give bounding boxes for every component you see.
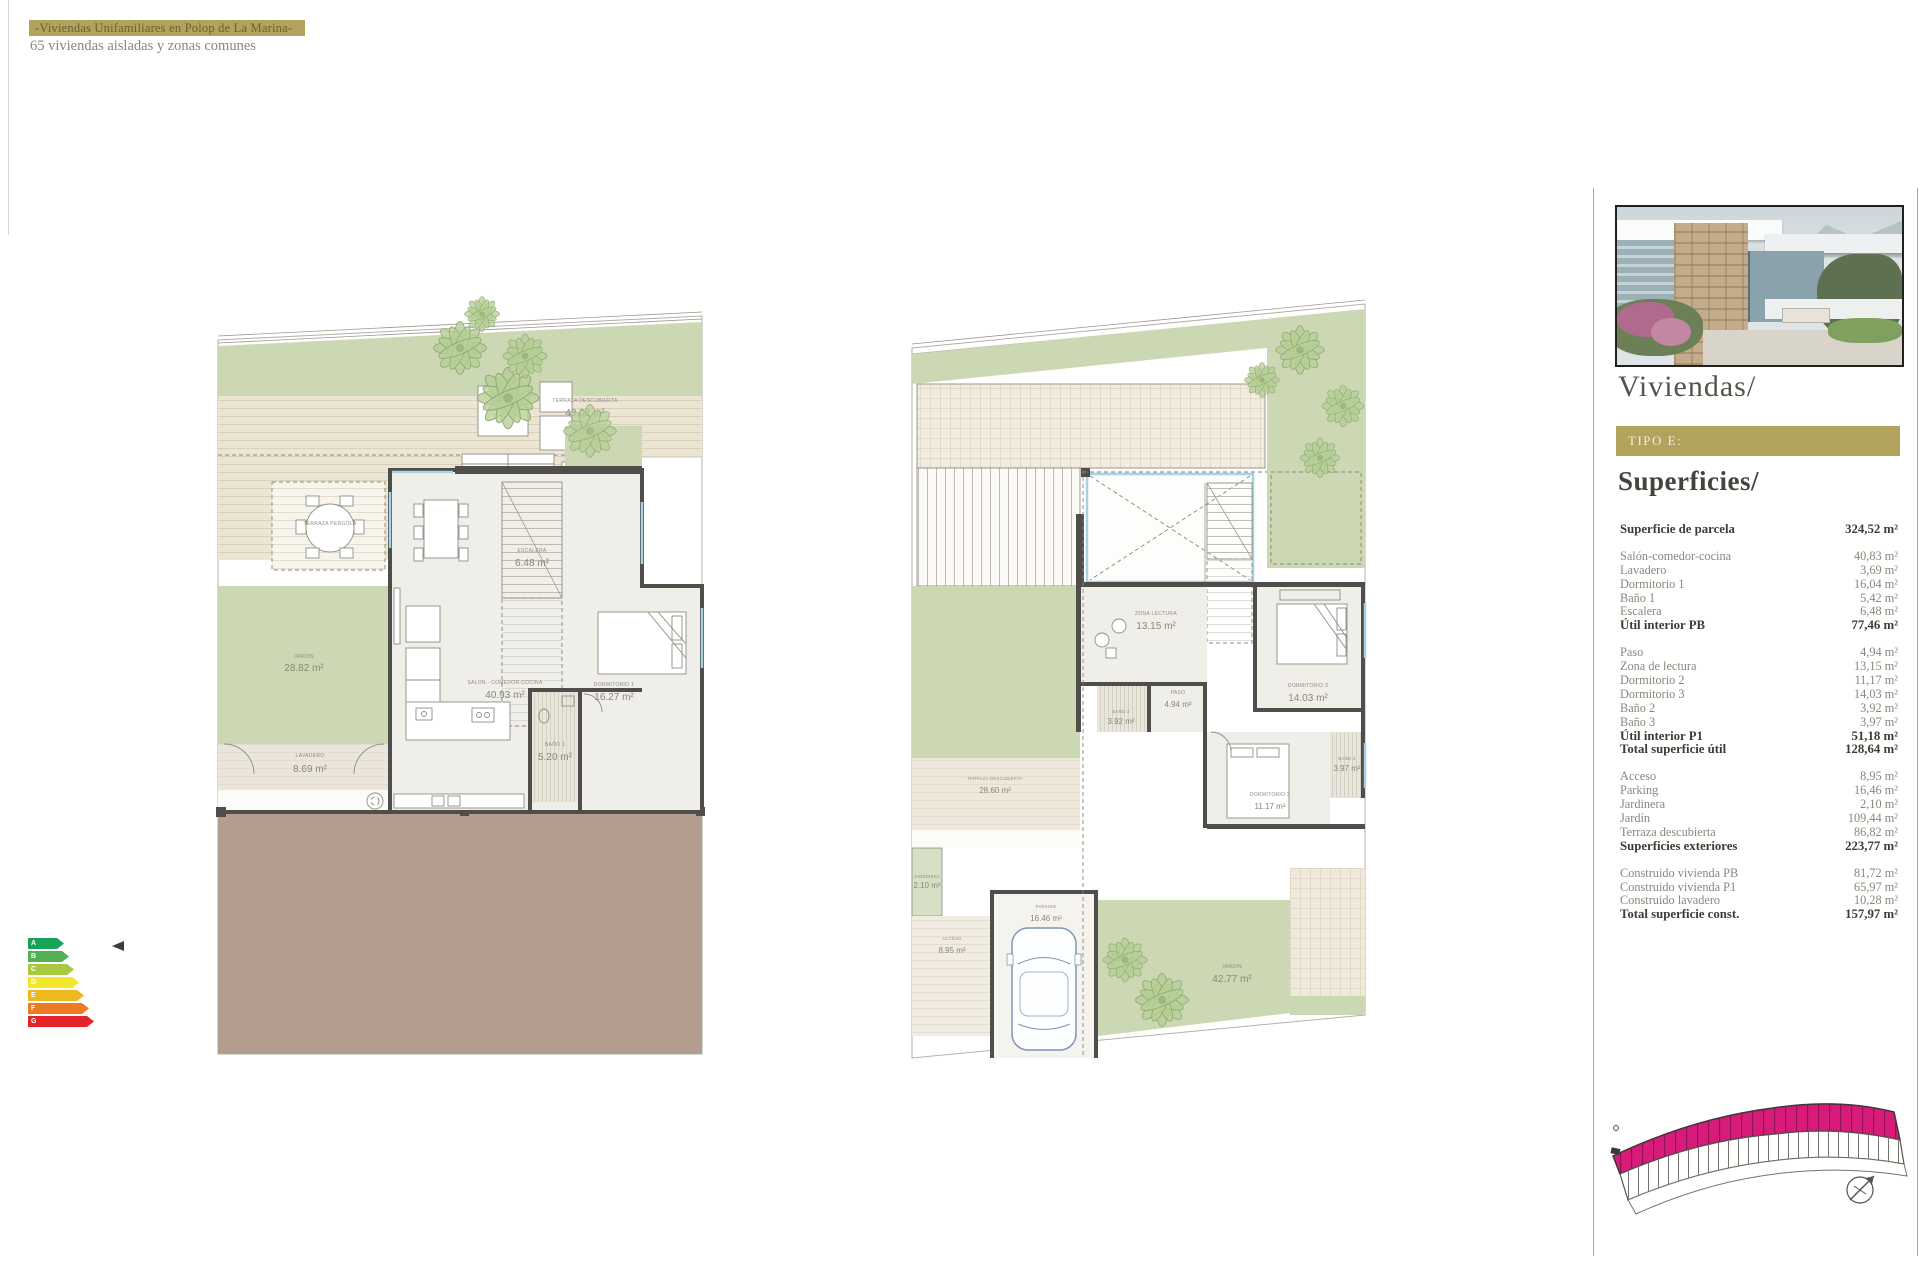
- room-label: SALON - COMEDOR-COCINA: [467, 680, 543, 686]
- surface-label: Construido lavadero: [1620, 893, 1720, 907]
- energy-marker-icon: [112, 941, 124, 951]
- room-area: 8.69 m²: [293, 764, 328, 775]
- surface-label: Construido vivienda PB: [1620, 866, 1738, 880]
- room-label: PASO: [1171, 690, 1186, 696]
- palm-tree-icon: [464, 296, 499, 331]
- sidebar-right-rule: [1917, 188, 1918, 1256]
- surface-value: 3,92 m²: [1860, 701, 1898, 715]
- surface-section: Superficie de parcela324,52 m²: [1620, 522, 1898, 536]
- surface-row: Lavadero3,69 m²: [1620, 563, 1898, 577]
- room-label: TERRAZA PERGOLA: [303, 521, 356, 527]
- room-label: TERRAZA DESCUBIERTA: [552, 398, 618, 404]
- surface-section: Construido vivienda PB81,72 m²Construido…: [1620, 866, 1898, 922]
- surface-label: Zona de lectura: [1620, 659, 1696, 673]
- surface-value: 8,95 m²: [1860, 769, 1898, 783]
- surface-section: Acceso8,95 m²Parking16,46 m²Jardinera2,1…: [1620, 769, 1898, 852]
- surface-value: 51,18 m²: [1852, 729, 1899, 743]
- room-label: BAÑO 1: [545, 741, 565, 748]
- surface-value: 65,97 m²: [1854, 880, 1898, 894]
- brochure-page: -Viviendas Unifamiliares en Polop de La …: [0, 0, 1920, 1280]
- sidebar-left-rule: [1593, 188, 1594, 1256]
- surface-value: 3,69 m²: [1860, 563, 1898, 577]
- room-label: JARDINERA: [914, 874, 940, 879]
- surfaces-title: Superficies/: [1618, 466, 1759, 497]
- room-area: 11.17 m²: [1255, 802, 1286, 811]
- palm-tree-icon: [503, 334, 547, 378]
- room-label: ESCALERA: [517, 548, 546, 554]
- surface-label: Superficies exteriores: [1620, 839, 1737, 853]
- room-area: 5.20 m²: [538, 752, 573, 763]
- energy-bar: D: [28, 977, 79, 988]
- garden-left: [912, 586, 1080, 758]
- room-label: DORMITORIO 3: [1288, 683, 1328, 689]
- room-area: 3.97 m²: [1333, 764, 1360, 773]
- project-photo: [1615, 205, 1904, 367]
- energy-letter: E: [28, 992, 36, 999]
- palm-tree-icon: [1300, 438, 1340, 478]
- room-label: PARKING: [1036, 904, 1057, 909]
- surface-row: Construido vivienda PB81,72 m²: [1620, 866, 1898, 880]
- room-label: ACCESO: [942, 936, 962, 941]
- surface-label: Dormitorio 3: [1620, 687, 1685, 701]
- sidebar-title: Viviendas/: [1618, 370, 1756, 404]
- room-area: 28.60 m²: [979, 786, 1011, 795]
- surface-label: Útil interior PB: [1620, 618, 1705, 632]
- energy-bar: B: [28, 951, 69, 962]
- energy-letter: B: [28, 953, 36, 960]
- surface-value: 16,04 m²: [1854, 577, 1898, 591]
- surface-value: 11,17 m²: [1854, 673, 1898, 687]
- surface-value: 10,28 m²: [1854, 893, 1898, 907]
- surface-row: Parking16,46 m²: [1620, 783, 1898, 797]
- room-area: 6.48 m²: [515, 558, 550, 569]
- surface-value: 3,97 m²: [1860, 715, 1898, 729]
- surface-label: Salón-comedor-cocina: [1620, 549, 1731, 563]
- surface-row: Terraza descubierta86,82 m²: [1620, 825, 1898, 839]
- energy-rating-scale: ABCDEFG: [28, 938, 94, 1029]
- surface-row: Dormitorio 211,17 m²: [1620, 673, 1898, 687]
- surface-label: Terraza descubierta: [1620, 825, 1716, 839]
- surface-label: Dormitorio 1: [1620, 577, 1685, 591]
- room-area: 8.95 m²: [938, 946, 965, 955]
- surface-row: Jardinera2,10 m²: [1620, 797, 1898, 811]
- palm-tree-icon: [1276, 326, 1324, 374]
- room-area: 13.15 m²: [1136, 621, 1176, 632]
- surface-label: Jardinera: [1620, 797, 1665, 811]
- surface-row: Útil interior P151,18 m²: [1620, 729, 1898, 743]
- surface-row: Baño 33,97 m²: [1620, 715, 1898, 729]
- surface-value: 223,77 m²: [1845, 839, 1898, 853]
- surface-value: 324,52 m²: [1845, 522, 1898, 536]
- surface-row: Baño 15,42 m²: [1620, 591, 1898, 605]
- surfaces-table: Superficie de parcela324,52 m²Salón-come…: [1620, 522, 1898, 934]
- surface-label: Jardín: [1620, 811, 1650, 825]
- street-area: [218, 814, 702, 1054]
- surface-label: Acceso: [1620, 769, 1656, 783]
- room-label: JARDIN: [294, 654, 314, 660]
- north-arrow-icon: [1847, 1176, 1874, 1203]
- page-title: -Viviendas Unifamiliares en Polop de La …: [29, 20, 305, 36]
- map-marker-square: [1610, 1147, 1620, 1155]
- surface-label: Baño 1: [1620, 591, 1655, 605]
- surface-row: Escalera6,48 m²: [1620, 604, 1898, 618]
- surface-row: Total superficie útil128,64 m²: [1620, 742, 1898, 756]
- surface-row: Superficie de parcela324,52 m²: [1620, 522, 1898, 536]
- room-area: 2.10 m²: [913, 881, 940, 890]
- surface-row: Construido lavadero10,28 m²: [1620, 893, 1898, 907]
- surface-label: Construido vivienda P1: [1620, 880, 1736, 894]
- room-label: LAVADERO: [296, 753, 325, 759]
- surface-value: 5,42 m²: [1860, 591, 1898, 605]
- energy-bar: C: [28, 964, 74, 975]
- energy-letter: A: [28, 940, 36, 947]
- room-label: BAÑO 2: [1112, 709, 1130, 714]
- type-badge-label: TIPO E:: [1616, 426, 1900, 456]
- room-area: 3.92 m²: [1107, 717, 1134, 726]
- surface-row: Jardín109,44 m²: [1620, 811, 1898, 825]
- surface-label: Útil interior P1: [1620, 729, 1703, 743]
- energy-letter: F: [28, 1005, 35, 1012]
- page-border: [8, 0, 9, 235]
- room-area: 16.46 m²: [1030, 914, 1062, 923]
- room-area: 14.03 m²: [1288, 693, 1328, 704]
- palm-tree-icon: [434, 322, 487, 375]
- surface-label: Paso: [1620, 645, 1643, 659]
- room-label: JARDIN: [1222, 964, 1242, 970]
- room-label: DORMITORIO 2: [1250, 792, 1290, 798]
- energy-bar: G: [28, 1016, 94, 1027]
- car-icon: [1007, 928, 1081, 1050]
- palm-tree-icon: [1136, 974, 1189, 1027]
- room-label: DORMITORIO 1: [594, 682, 634, 688]
- energy-bar: A: [28, 938, 64, 949]
- surface-label: Lavadero: [1620, 563, 1666, 577]
- surface-label: Dormitorio 2: [1620, 673, 1685, 687]
- surface-label: Superficie de parcela: [1620, 522, 1735, 536]
- room-area: 42.77 m²: [1212, 974, 1252, 985]
- surface-value: 77,46 m²: [1852, 618, 1899, 632]
- palm-tree-icon: [1322, 385, 1364, 427]
- surface-label: Total superficie const.: [1620, 907, 1739, 921]
- header-title-bar: -Viviendas Unifamiliares en Polop de La …: [29, 20, 305, 36]
- surface-row: Construido vivienda P165,97 m²: [1620, 880, 1898, 894]
- surface-row: Superficies exteriores223,77 m²: [1620, 839, 1898, 853]
- surface-row: Útil interior PB77,46 m²: [1620, 618, 1898, 632]
- palm-tree-icon: [564, 405, 617, 458]
- surface-value: 109,44 m²: [1848, 811, 1898, 825]
- surface-section: Paso4,94 m²Zona de lectura13,15 m²Dormit…: [1620, 645, 1898, 756]
- surface-value: 6,48 m²: [1860, 604, 1898, 618]
- surface-row: Total superficie const.157,97 m²: [1620, 907, 1898, 921]
- room-label: ZONA LECTURA: [1135, 611, 1177, 617]
- surface-row: Acceso8,95 m²: [1620, 769, 1898, 783]
- energy-letter: G: [28, 1018, 36, 1025]
- room-label: TERRAZA DESCUBIERTA: [967, 776, 1023, 781]
- floorplan-ground-floor: TERRAZA DESCUBIERTA 43.02 m² JARDIN 39.3…: [210, 296, 710, 1060]
- site-location-map: [1598, 1078, 1913, 1238]
- surface-label: Escalera: [1620, 604, 1662, 618]
- surface-value: 2,10 m²: [1860, 797, 1898, 811]
- surface-value: 157,97 m²: [1845, 907, 1898, 921]
- floorplan-first-floor: ZONA LECTURA 13.15 m² PASO 4.94 m² BAÑO …: [900, 288, 1375, 1068]
- type-badge: TIPO E:: [1616, 426, 1900, 456]
- palm-tree-icon: [477, 367, 539, 429]
- surface-value: 13,15 m²: [1854, 659, 1898, 673]
- room-label: BAÑO 3: [1338, 756, 1356, 761]
- surface-label: Parking: [1620, 783, 1658, 797]
- map-marker-dot: [1614, 1126, 1619, 1131]
- surface-row: Zona de lectura13,15 m²: [1620, 659, 1898, 673]
- surface-row: Paso4,94 m²: [1620, 645, 1898, 659]
- surface-row: Dormitorio 314,03 m²: [1620, 687, 1898, 701]
- energy-letter: D: [28, 979, 36, 986]
- room-area: 40.93 m²: [485, 690, 525, 701]
- room-area: 4.94 m²: [1164, 700, 1191, 709]
- palm-tree-icon: [1244, 362, 1279, 397]
- surface-value: 14,03 m²: [1854, 687, 1898, 701]
- surface-label: Baño 2: [1620, 701, 1655, 715]
- surface-label: Total superficie útil: [1620, 742, 1726, 756]
- energy-bar: E: [28, 990, 84, 1001]
- surface-label: Baño 3: [1620, 715, 1655, 729]
- surface-row: Salón-comedor-cocina40,83 m²: [1620, 549, 1898, 563]
- energy-bar: F: [28, 1003, 89, 1014]
- surface-row: Baño 23,92 m²: [1620, 701, 1898, 715]
- energy-letter: C: [28, 966, 36, 973]
- surface-value: 81,72 m²: [1854, 866, 1898, 880]
- surface-value: 40,83 m²: [1854, 549, 1898, 563]
- surface-value: 128,64 m²: [1845, 742, 1898, 756]
- page-subtitle: 65 viviendas aisladas y zonas comunes: [30, 38, 256, 55]
- surface-row: Dormitorio 116,04 m²: [1620, 577, 1898, 591]
- room-area: 16.27 m²: [594, 692, 634, 703]
- surface-value: 4,94 m²: [1860, 645, 1898, 659]
- surface-value: 86,82 m²: [1854, 825, 1898, 839]
- surface-value: 16,46 m²: [1854, 783, 1898, 797]
- palm-tree-icon: [1103, 938, 1147, 982]
- room-area: 28.82 m²: [284, 663, 324, 674]
- surface-section: Salón-comedor-cocina40,83 m²Lavadero3,69…: [1620, 549, 1898, 632]
